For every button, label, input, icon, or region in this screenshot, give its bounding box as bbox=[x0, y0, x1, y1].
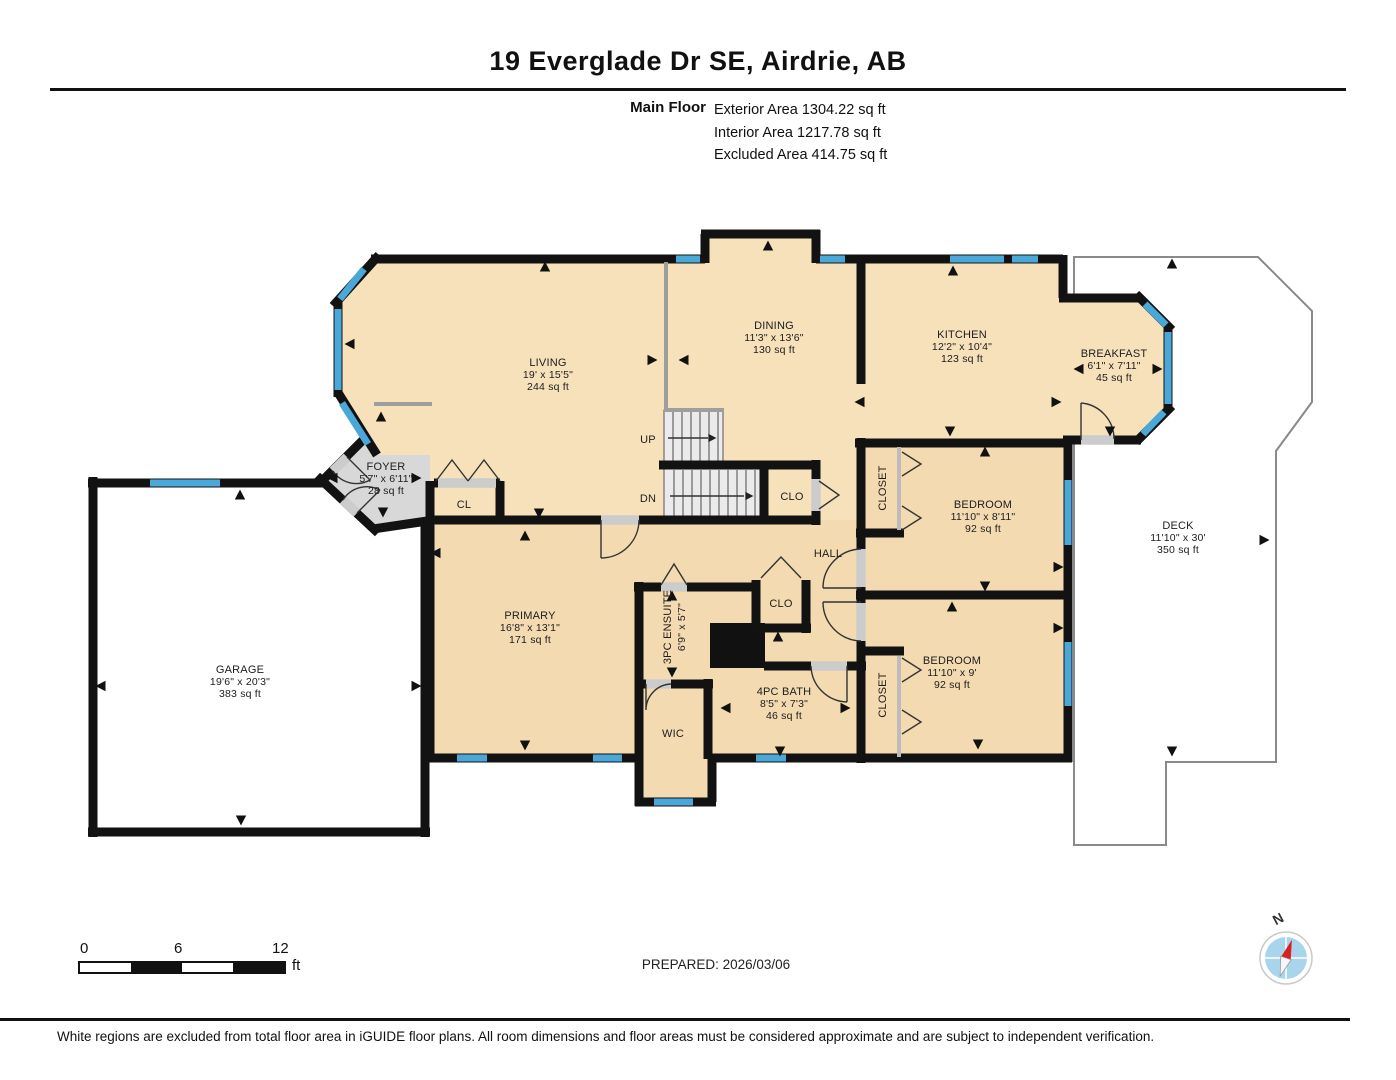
exterior-area: Exterior Area 1304.22 sq ft bbox=[714, 99, 887, 122]
scale-unit: ft bbox=[292, 957, 300, 974]
living-dims: 19' x 15'5" bbox=[523, 369, 573, 381]
compass-north-label: N bbox=[1270, 909, 1286, 928]
breakfast-label: BREAKFAST bbox=[1081, 348, 1148, 360]
garage-label: GARAGE bbox=[216, 664, 264, 676]
cl-label: CL bbox=[457, 499, 471, 511]
header-divider bbox=[50, 88, 1346, 91]
foyer-dims: 5'7" x 6'11" bbox=[359, 473, 412, 485]
kitchen-dims: 12'2" x 10'4" bbox=[932, 341, 992, 353]
bedroom1-area: 92 sq ft bbox=[965, 523, 1001, 535]
ensuite-dims: 6'9" x 5'7" bbox=[676, 603, 688, 651]
deck-area: 350 sq ft bbox=[1157, 544, 1199, 556]
dining-dims: 11'3" x 13'6" bbox=[744, 332, 803, 344]
foyer-label: FOYER bbox=[367, 461, 406, 473]
disclaimer: White regions are excluded from total fl… bbox=[57, 1029, 1154, 1044]
scale-tick-0: 0 bbox=[80, 940, 88, 957]
clo-hall-label: CLO bbox=[769, 598, 792, 610]
hall-label: HALL bbox=[814, 548, 842, 560]
living-label: LIVING bbox=[529, 357, 566, 369]
page-title: 19 Everglade Dr SE, Airdrie, AB bbox=[0, 46, 1396, 77]
breakfast-area: 45 sq ft bbox=[1096, 372, 1132, 384]
bedroom1-dims: 11'10" x 8'11" bbox=[951, 511, 1016, 523]
bedroom2-dims: 11'10" x 9' bbox=[927, 667, 976, 679]
bath-dims: 8'5" x 7'3" bbox=[760, 698, 808, 710]
primary-area: 171 sq ft bbox=[509, 634, 551, 646]
scale-segment bbox=[131, 963, 182, 972]
bedroom2-label: BEDROOM bbox=[923, 655, 981, 667]
scale-tick-12: 12 bbox=[272, 940, 289, 957]
deck-dims: 11'10" x 30' bbox=[1150, 532, 1205, 544]
area-summary: Exterior Area 1304.22 sq ft Interior Are… bbox=[714, 99, 887, 167]
bath-area: 46 sq ft bbox=[766, 710, 802, 722]
garage-area: 383 sq ft bbox=[219, 688, 261, 700]
dining-label: DINING bbox=[754, 320, 794, 332]
garage-dims: 19'6" x 20'3" bbox=[210, 676, 270, 688]
primary-label: PRIMARY bbox=[504, 610, 556, 622]
compass-rose: N bbox=[1246, 906, 1326, 990]
closet-bedroom2-label: CLOSET bbox=[877, 672, 889, 717]
dining-area: 130 sq ft bbox=[753, 344, 795, 356]
primary-dims: 16'8" x 13'1" bbox=[500, 622, 560, 634]
wic-label: WIC bbox=[662, 728, 684, 740]
breakfast-dims: 6'1" x 7'11" bbox=[1087, 360, 1140, 372]
interior-area: Interior Area 1217.78 sq ft bbox=[714, 122, 887, 145]
stairs-up-label: UP bbox=[640, 434, 656, 446]
bedroom2-area: 92 sq ft bbox=[934, 679, 970, 691]
prepared-date: PREPARED: 2026/03/06 bbox=[500, 957, 932, 972]
stairs-dn-label: DN bbox=[640, 493, 656, 505]
closet-bedroom1-label: CLOSET bbox=[877, 465, 889, 510]
scale-bar bbox=[78, 961, 286, 974]
scale-segment bbox=[182, 963, 233, 972]
foyer-area: 28 sq ft bbox=[368, 485, 404, 497]
excluded-area: Excluded Area 414.75 sq ft bbox=[714, 144, 887, 167]
floor-plan: LIVING 19' x 15'5" 244 sq ft DINING 11'3… bbox=[0, 200, 1396, 900]
deck-label: DECK bbox=[1162, 520, 1194, 532]
bath-label: 4PC BATH bbox=[757, 686, 812, 698]
ensuite-label: 3PC ENSUITE bbox=[662, 590, 674, 664]
footer-divider bbox=[0, 1018, 1350, 1021]
scale-tick-6: 6 bbox=[174, 940, 182, 957]
scale-segment bbox=[80, 963, 131, 972]
clo-stair-label: CLO bbox=[780, 491, 803, 503]
bedroom1-label: BEDROOM bbox=[954, 499, 1012, 511]
kitchen-area: 123 sq ft bbox=[941, 353, 983, 365]
living-area: 244 sq ft bbox=[527, 381, 569, 393]
kitchen-label: KITCHEN bbox=[937, 329, 987, 341]
floor-label: Main Floor bbox=[540, 99, 706, 116]
scale-segment bbox=[233, 963, 284, 972]
